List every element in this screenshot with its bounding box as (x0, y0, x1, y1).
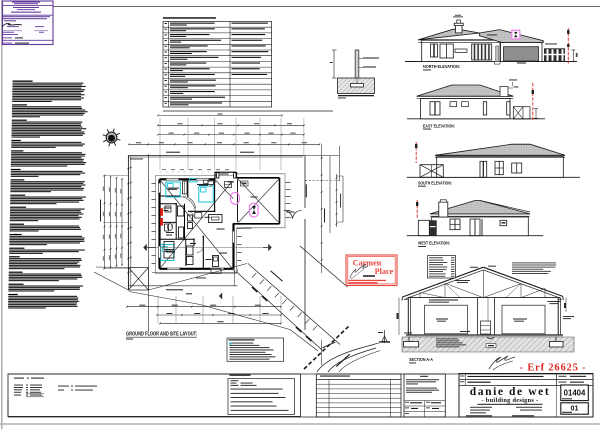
svg-text:01404: 01404 (564, 389, 586, 398)
svg-text:SECTION A-A: SECTION A-A (409, 357, 433, 363)
svg-text:01: 01 (571, 404, 579, 413)
svg-text:SOUTH ELEVATION:: SOUTH ELEVATION: (418, 180, 452, 185)
svg-text:Place: Place (375, 267, 394, 276)
svg-text:- building designs -: - building designs - (482, 397, 539, 404)
svg-text:NORTH ELEVATION:: NORTH ELEVATION: (423, 64, 460, 69)
svg-text:EAST ELEVATION:: EAST ELEVATION: (423, 123, 455, 128)
svg-text:WEST ELEVATION:: WEST ELEVATION: (418, 241, 450, 246)
svg-text:- Erf 26625 -: - Erf 26625 - (520, 363, 587, 374)
svg-text:GROUND FLOOR AND SITE LAYOUT:: GROUND FLOOR AND SITE LAYOUT: (126, 332, 197, 338)
